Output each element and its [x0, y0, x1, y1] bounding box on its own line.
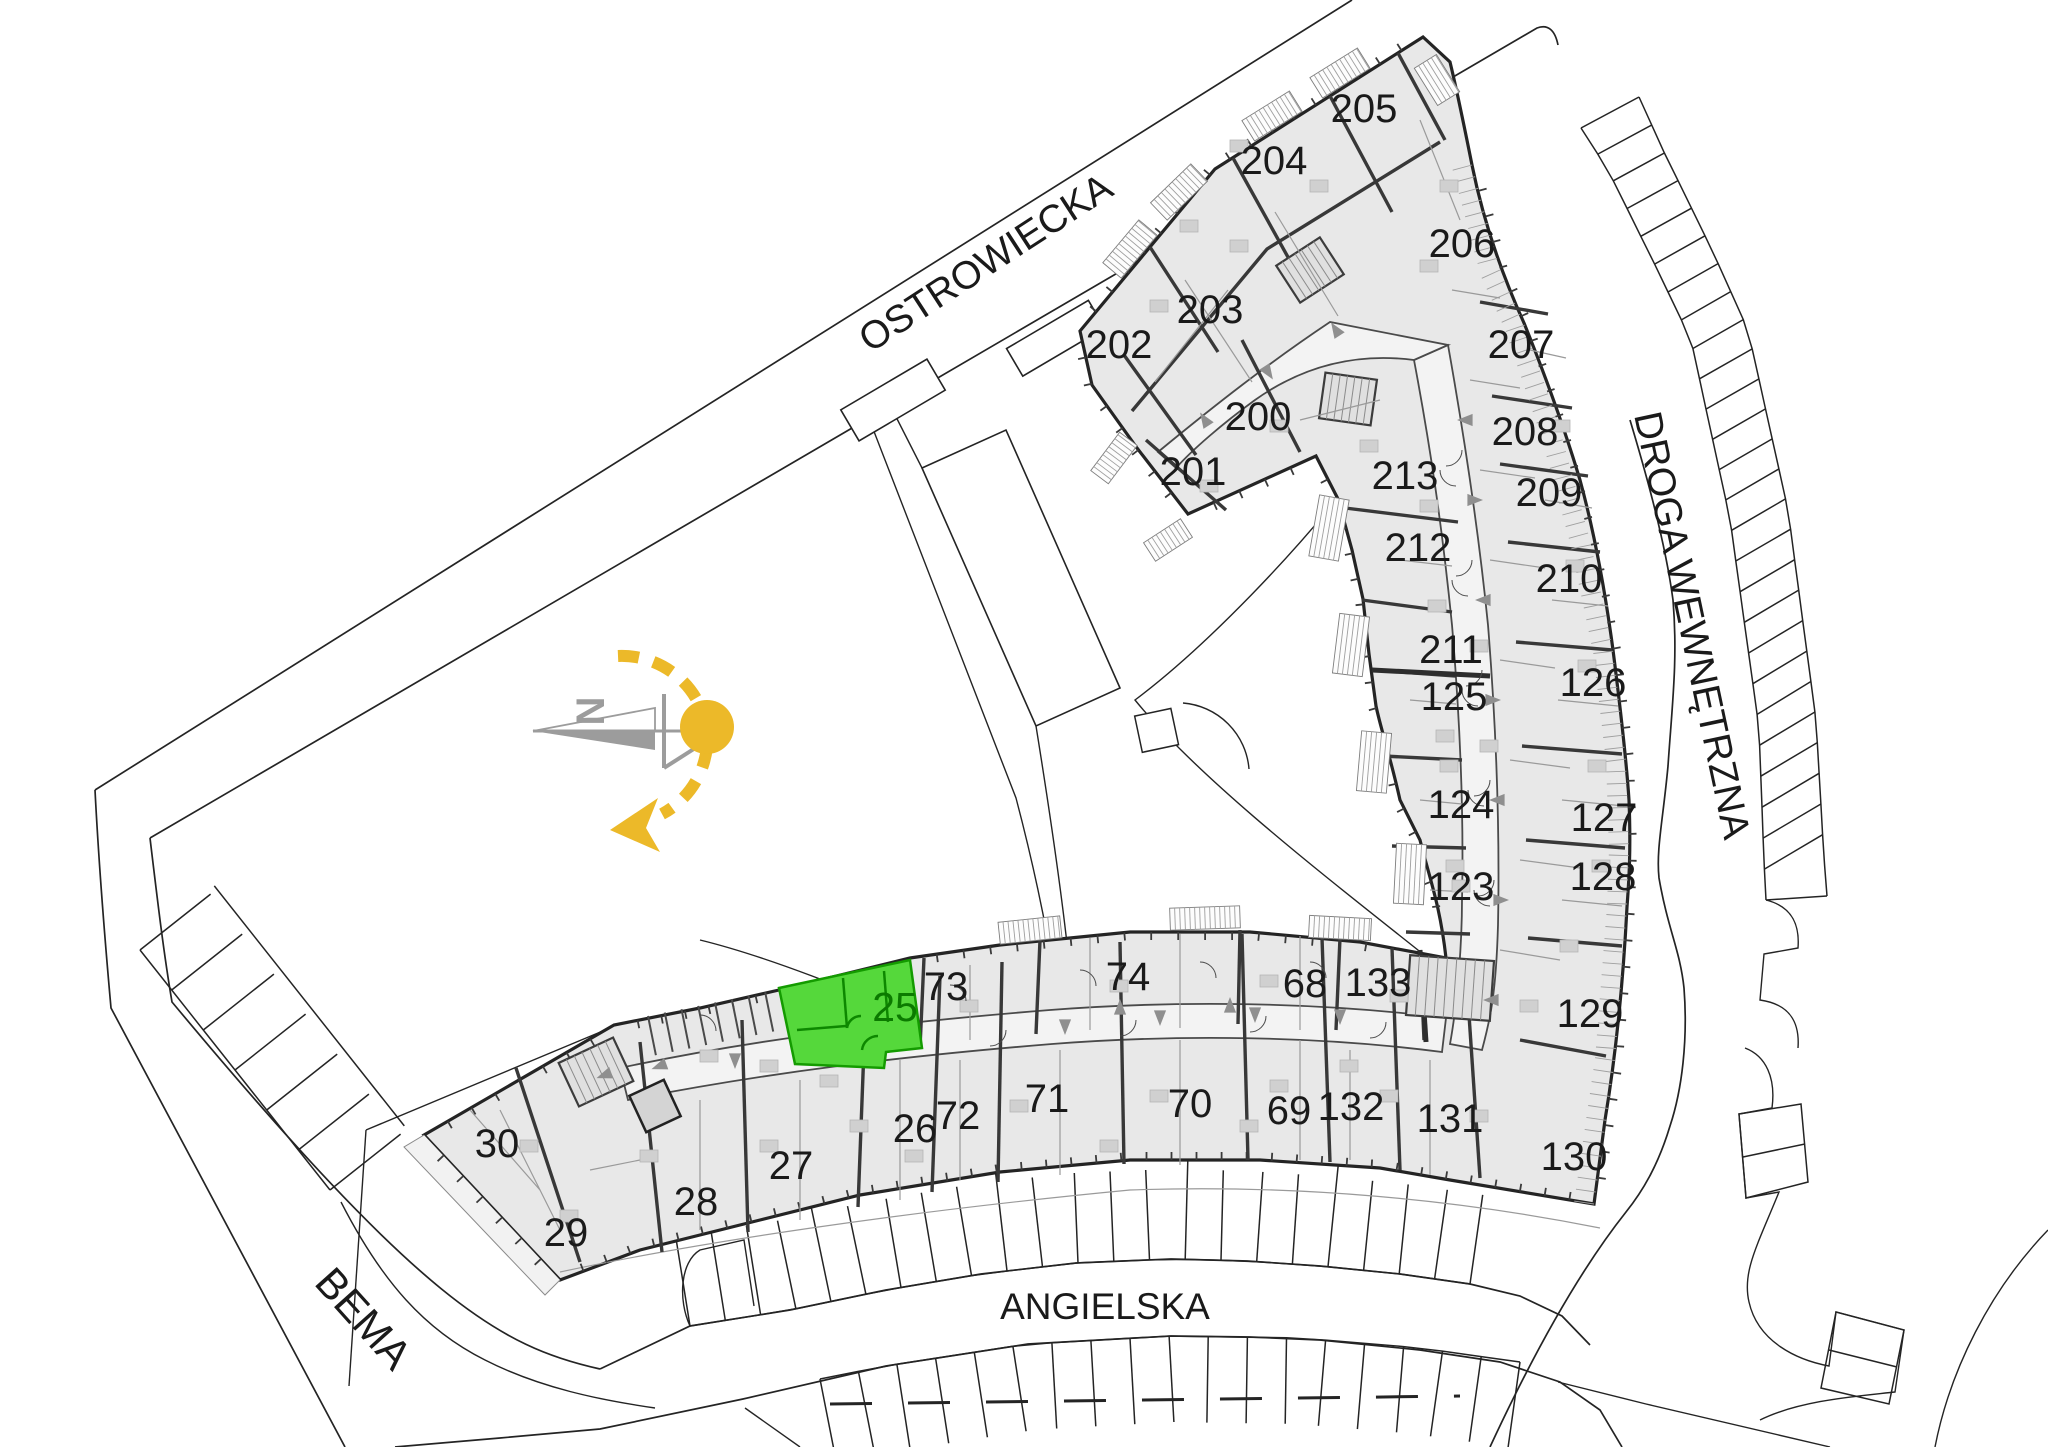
svg-text:133: 133	[1345, 961, 1412, 1005]
svg-text:131: 131	[1417, 1097, 1484, 1141]
svg-text:71: 71	[1025, 1077, 1070, 1121]
svg-text:212: 212	[1385, 526, 1452, 570]
svg-text:127: 127	[1571, 796, 1638, 840]
svg-text:201: 201	[1160, 450, 1227, 494]
svg-text:211: 211	[1419, 628, 1483, 672]
svg-text:27: 27	[769, 1144, 814, 1188]
svg-text:125: 125	[1421, 675, 1488, 719]
svg-text:29: 29	[544, 1211, 589, 1255]
svg-text:128: 128	[1570, 855, 1637, 899]
svg-text:132: 132	[1318, 1085, 1385, 1129]
svg-text:25: 25	[872, 984, 918, 1030]
svg-text:208: 208	[1492, 410, 1559, 454]
svg-text:126: 126	[1560, 661, 1627, 705]
svg-text:130: 130	[1541, 1135, 1608, 1179]
svg-text:129: 129	[1557, 992, 1624, 1036]
svg-text:26: 26	[893, 1107, 938, 1151]
svg-text:28: 28	[674, 1180, 719, 1224]
svg-text:ANGIELSKA: ANGIELSKA	[1000, 1286, 1210, 1327]
svg-text:72: 72	[936, 1094, 981, 1138]
svg-text:209: 209	[1516, 471, 1583, 515]
svg-text:73: 73	[924, 965, 969, 1009]
svg-text:205: 205	[1331, 87, 1398, 131]
svg-text:68: 68	[1283, 962, 1328, 1006]
svg-text:124: 124	[1428, 783, 1495, 827]
svg-text:210: 210	[1536, 557, 1603, 601]
svg-text:204: 204	[1241, 139, 1308, 183]
svg-text:30: 30	[475, 1122, 520, 1166]
svg-text:207: 207	[1488, 323, 1555, 367]
svg-text:N: N	[569, 697, 613, 726]
svg-text:123: 123	[1428, 865, 1495, 909]
svg-text:203: 203	[1177, 288, 1244, 332]
svg-text:74: 74	[1106, 955, 1151, 999]
svg-text:70: 70	[1168, 1082, 1213, 1126]
svg-text:213: 213	[1372, 454, 1439, 498]
svg-text:206: 206	[1429, 222, 1496, 266]
svg-text:200: 200	[1225, 395, 1292, 439]
svg-text:69: 69	[1267, 1089, 1312, 1133]
svg-text:202: 202	[1086, 323, 1153, 367]
